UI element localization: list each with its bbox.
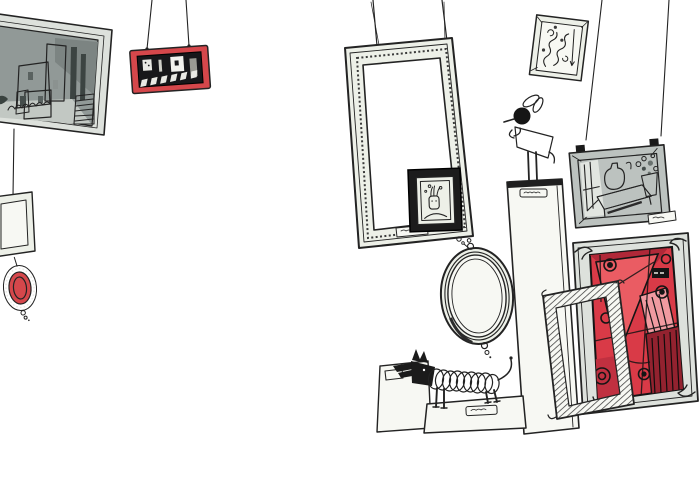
dog-eye [423,369,425,371]
small-empty-frame [0,192,35,257]
red-abstract-painting [573,233,698,414]
bird-head [514,108,531,125]
dog-tail-tip [509,356,512,359]
gallery-wall-scene [0,0,700,484]
swirl-frame [529,15,588,81]
landscape-painting [0,13,112,135]
small-portrait-frame [408,168,462,232]
illustration-canvas [0,0,700,484]
